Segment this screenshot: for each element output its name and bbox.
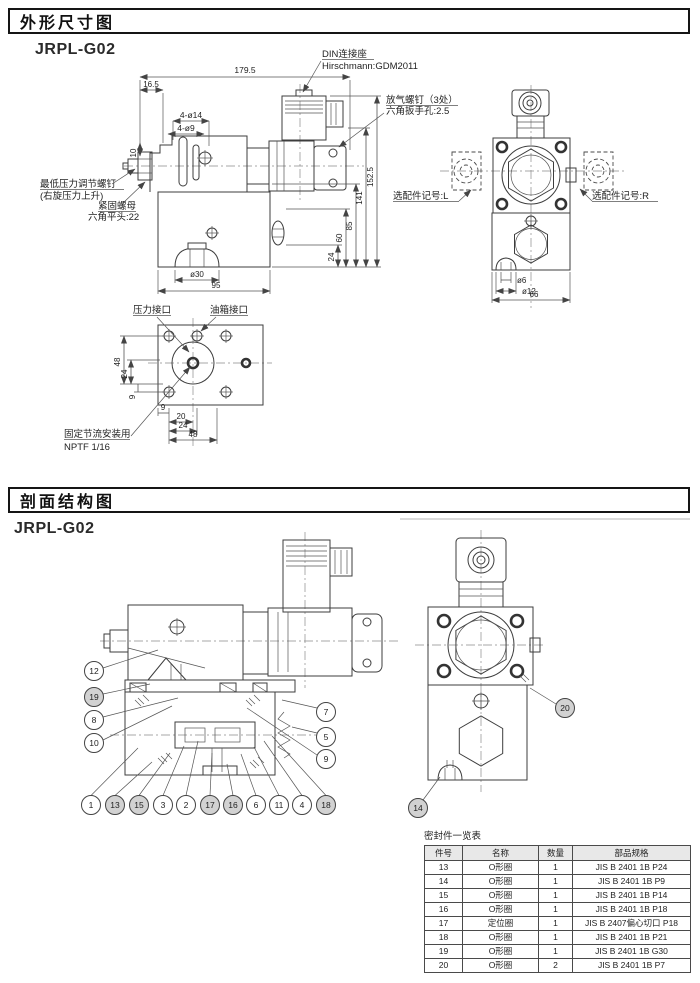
dim-h1525: 152.5 — [366, 166, 375, 187]
flange-view-drawing — [148, 318, 272, 446]
label-min-pressure-note: (右旋压力上升) — [40, 190, 103, 202]
balloon-18: 18 — [321, 800, 331, 810]
cell-name: O形圈 — [463, 861, 539, 875]
balloon-12: 12 — [89, 666, 99, 676]
dim-fb20: 20 — [177, 412, 186, 421]
front-view-dimensions: 179.5 16.5 4-ø14 4-ø9 10 24 60 85 — [129, 65, 381, 294]
cell-part-no: 15 — [425, 889, 463, 903]
seal-table-title: 密封件一览表 — [424, 828, 692, 842]
balloon-4: 4 — [300, 800, 305, 810]
dim-fb24: 24 — [179, 421, 188, 430]
dim-h85: 85 — [345, 221, 354, 230]
cell-part-no: 17 — [425, 917, 463, 931]
cell-qty: 1 — [539, 875, 573, 889]
dim-boss6: ø6 — [517, 276, 527, 285]
seal-row-13: 13 O形圈 1 JIS B 2401 1B P24 — [425, 861, 691, 875]
balloon-7: 7 — [324, 707, 329, 717]
balloon-3: 3 — [161, 800, 166, 810]
label-option-r: 选配件记号:R — [592, 190, 649, 202]
side-view-dimensions: ø6 ø12 66 选配件记号:L 选配件记号:R — [393, 189, 658, 303]
cell-name: O形圈 — [463, 931, 539, 945]
dim-step10: 10 — [129, 148, 138, 157]
cell-spec: JIS B 2401 1B P14 — [573, 889, 691, 903]
seal-row-20: 20 O形圈 2 JIS B 2401 1B P7 — [425, 959, 691, 973]
seal-parts-table-block: 密封件一览表 件号 名称 数量 部品规格 13 O形圈 1 JIS B 2401… — [424, 828, 692, 973]
balloon-13: 13 — [110, 800, 120, 810]
balloon-5: 5 — [324, 732, 329, 742]
dim-fb9: 9 — [161, 403, 166, 412]
balloon-15: 15 — [134, 800, 144, 810]
sectional-view-balloons: 12 19 8 10 7 5 9 1 13 — [82, 650, 336, 815]
cell-qty: 1 — [539, 917, 573, 931]
seal-row-19: 19 O形圈 1 JIS B 2401 1B G30 — [425, 945, 691, 959]
col-header-part-no: 件号 — [425, 846, 463, 861]
cell-name: O形圈 — [463, 945, 539, 959]
cell-spec: JIS B 2401 1B P18 — [573, 903, 691, 917]
cell-spec: JIS B 2401 1B P21 — [573, 931, 691, 945]
balloon-20: 20 — [560, 703, 570, 713]
cell-part-no: 18 — [425, 931, 463, 945]
cell-part-no: 14 — [425, 875, 463, 889]
seal-table-header-row: 件号 名称 数量 部品规格 — [425, 846, 691, 861]
balloon-8: 8 — [92, 715, 97, 725]
cell-name: O形圈 — [463, 875, 539, 889]
balloon-6: 6 — [254, 800, 259, 810]
cell-qty: 1 — [539, 903, 573, 917]
cell-part-no: 19 — [425, 945, 463, 959]
cell-spec: JIS B 2401 1B G30 — [573, 945, 691, 959]
seal-row-18: 18 O形圈 1 JIS B 2401 1B P21 — [425, 931, 691, 945]
dim-h60: 60 — [335, 233, 344, 242]
catalog-page: 外形尺寸图 JRPL-G02 剖面结构图 JRPL-G02 — [0, 0, 700, 983]
label-din-connector: DIN连接座 — [322, 48, 367, 60]
cell-name: 定位圈 — [463, 917, 539, 931]
dim-fl24: 24 — [120, 369, 129, 378]
cell-spec: JIS B 2407偏心切口 P18 — [573, 917, 691, 931]
balloon-9: 9 — [324, 754, 329, 764]
col-header-spec: 部品规格 — [573, 846, 691, 861]
dim-base95: 95 — [212, 281, 221, 290]
label-lock-nut: 紧固螺母 — [98, 201, 136, 212]
cell-name: O形圈 — [463, 903, 539, 917]
label-throttle-thread: NPTF 1/16 — [64, 442, 110, 453]
cell-name: O形圈 — [463, 959, 539, 973]
balloon-14: 14 — [413, 803, 423, 813]
label-min-pressure-screw: 最低压力调节螺钉 — [40, 178, 117, 190]
balloon-17: 17 — [205, 800, 215, 810]
balloon-16: 16 — [228, 800, 238, 810]
cell-qty: 1 — [539, 931, 573, 945]
cell-qty: 1 — [539, 945, 573, 959]
dim-holes-small: 4-ø9 — [177, 123, 195, 133]
sectional-view-drawing — [100, 532, 400, 775]
label-tank-port: 油箱接口 — [210, 304, 248, 316]
col-header-name: 名称 — [463, 846, 539, 861]
cell-name: O形圈 — [463, 889, 539, 903]
cell-part-no: 16 — [425, 903, 463, 917]
label-option-l: 选配件记号:L — [393, 190, 448, 202]
balloon-2: 2 — [184, 800, 189, 810]
cell-spec: JIS B 2401 1B P9 — [573, 875, 691, 889]
cell-qty: 2 — [539, 959, 573, 973]
dim-boss30: ø30 — [190, 270, 204, 279]
label-bleed-hex: 六角扳手孔:2.5 — [386, 105, 449, 117]
cell-qty: 1 — [539, 861, 573, 875]
col-header-qty: 数量 — [539, 846, 573, 861]
dim-fb48: 48 — [189, 430, 198, 439]
seal-row-16: 16 O形圈 1 JIS B 2401 1B P18 — [425, 903, 691, 917]
dim-overall-width: 179.5 — [234, 65, 256, 75]
dim-fl9: 9 — [128, 394, 137, 399]
balloon-10: 10 — [89, 738, 99, 748]
label-bleed-screw: 放气螺钉（3处） — [386, 94, 458, 106]
cell-spec: JIS B 2401 1B P24 — [573, 861, 691, 875]
dim-top-offset: 16.5 — [143, 80, 159, 89]
front-view-drawing — [123, 84, 364, 267]
label-din-model: Hirschmann:GDM2011 — [322, 61, 418, 72]
flange-view-dimensions: 压力接口 油箱接口 48 24 9 9 20 24 — [64, 304, 248, 453]
cell-part-no: 13 — [425, 861, 463, 875]
seal-row-14: 14 O形圈 1 JIS B 2401 1B P9 — [425, 875, 691, 889]
seal-parts-table: 件号 名称 数量 部品规格 13 O形圈 1 JIS B 2401 1B P24… — [424, 845, 691, 973]
seal-row-17: 17 定位圈 1 JIS B 2407偏心切口 P18 — [425, 917, 691, 931]
cell-spec: JIS B 2401 1B P7 — [573, 959, 691, 973]
balloon-19: 19 — [89, 692, 99, 702]
cell-qty: 1 — [539, 889, 573, 903]
dim-side66: 66 — [530, 290, 539, 299]
dim-h141: 141 — [355, 191, 364, 205]
label-throttle-mount: 固定节流安装用 — [64, 428, 131, 440]
label-lock-nut-hex: 六角平头:22 — [88, 211, 139, 223]
cell-part-no: 20 — [425, 959, 463, 973]
dim-h24: 24 — [327, 252, 336, 261]
label-pressure-port: 压力接口 — [133, 304, 171, 316]
seal-row-15: 15 O形圈 1 JIS B 2401 1B P14 — [425, 889, 691, 903]
sectional-side-view-drawing — [415, 530, 545, 792]
balloon-1: 1 — [89, 800, 94, 810]
sectional-side-view-balloons: 20 14 — [409, 688, 575, 818]
balloon-11: 11 — [275, 800, 284, 810]
dim-fl48: 48 — [113, 357, 122, 366]
dim-holes-large: 4-ø14 — [180, 110, 202, 120]
